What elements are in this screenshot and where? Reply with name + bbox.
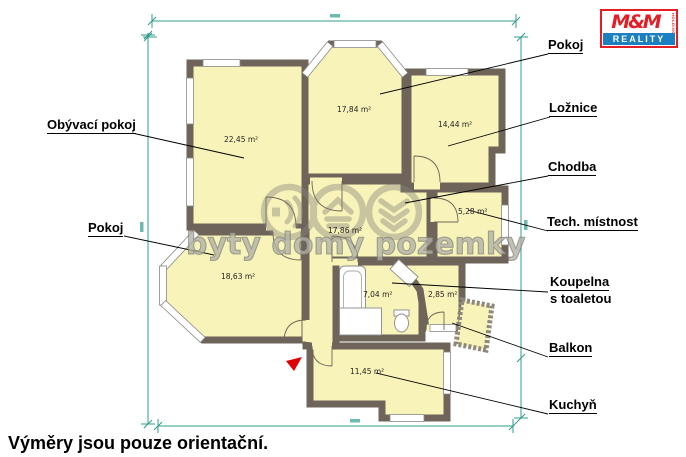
room-kuchyn <box>310 346 447 418</box>
room-area-balkon: 2,85 m² <box>428 290 457 299</box>
floorplan-page: byty domy pozemky 22,45 m² 17,84 m² 14,4… <box>0 0 686 457</box>
room-area-obyvaci-pokoj: 22,45 m² <box>224 135 258 144</box>
room-label-koupelna: Koupelnas toaletou <box>550 274 611 306</box>
room-area-kuchyn: 11,45 m² <box>350 367 384 376</box>
room-label-pokoj-left: Pokoj <box>88 220 123 237</box>
toilet-bowl <box>395 314 409 332</box>
balcony-railing <box>456 300 492 350</box>
room-loznice <box>408 72 502 186</box>
room-area-chodba: 17,86 m² <box>328 226 362 235</box>
room-area-pokoj-left: 18,63 m² <box>221 272 255 281</box>
room-label-loznice: Ložnice <box>549 100 597 117</box>
logo-mm-text: M&M <box>602 11 669 33</box>
logo-holding-text: HOLDING <box>671 13 676 35</box>
room-area-koupelna: 7,04 m² <box>363 290 392 299</box>
room-area-loznice: 14,44 m² <box>438 120 472 129</box>
room-area-tech-mistnost: 5,28 m² <box>458 207 487 216</box>
room-label-kuchyn: Kuchyň <box>549 397 597 414</box>
logo-reality-text: REALITY <box>603 33 675 45</box>
room-label-obyvaci-pokoj: Obývací pokoj <box>47 117 136 134</box>
room-label-chodba: Chodba <box>548 159 596 176</box>
disclaimer-text: Výměry jsou pouze orientační. <box>8 433 268 454</box>
room-label-pokoj-top: Pokoj <box>548 37 583 54</box>
room-label-tech-mistnost: Tech. místnost <box>547 214 638 231</box>
entrance-arrow-icon <box>286 357 302 371</box>
agency-logo: M&M HOLDING REALITY <box>600 9 678 48</box>
washing-machine <box>340 308 382 335</box>
room-area-pokoj-top: 17,84 m² <box>337 105 371 114</box>
room-label-balkon: Balkon <box>549 340 592 357</box>
